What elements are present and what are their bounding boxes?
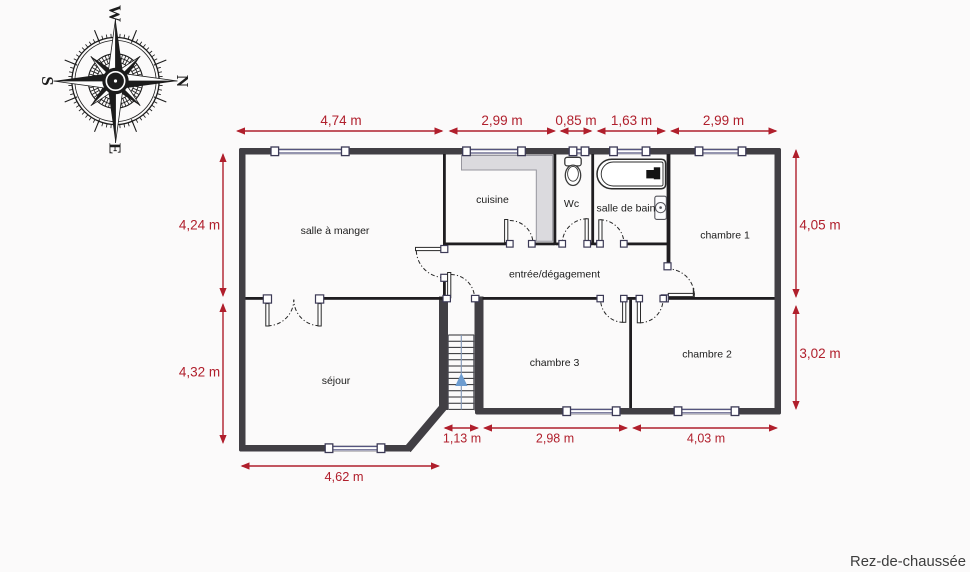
svg-text:salle de bain: salle de bain <box>597 203 656 215</box>
svg-text:S: S <box>38 76 57 85</box>
svg-text:2,99 m: 2,99 m <box>703 113 744 128</box>
svg-text:2,99 m: 2,99 m <box>481 113 522 128</box>
svg-text:0,85 m: 0,85 m <box>555 113 596 128</box>
svg-text:N: N <box>173 75 192 88</box>
svg-text:cuisine: cuisine <box>476 194 509 206</box>
svg-text:chambre 3: chambre 3 <box>530 357 580 369</box>
svg-text:2,98 m: 2,98 m <box>536 432 574 446</box>
svg-text:4,32 m: 4,32 m <box>179 365 220 380</box>
svg-text:entrée/dégagement: entrée/dégagement <box>509 269 600 281</box>
svg-text:3,02 m: 3,02 m <box>799 346 840 361</box>
svg-text:chambre 1: chambre 1 <box>700 230 750 242</box>
svg-text:4,62 m: 4,62 m <box>324 469 363 484</box>
svg-text:E: E <box>106 143 125 154</box>
svg-text:4,03 m: 4,03 m <box>687 432 725 446</box>
svg-text:1,63 m: 1,63 m <box>611 113 652 128</box>
svg-text:W: W <box>106 5 125 22</box>
svg-text:séjour: séjour <box>322 375 351 387</box>
svg-text:Rez-de-chaussée: Rez-de-chaussée <box>850 554 966 570</box>
svg-text:4,74 m: 4,74 m <box>320 113 361 128</box>
svg-text:4,24 m: 4,24 m <box>179 218 220 233</box>
svg-text:4,05 m: 4,05 m <box>799 218 840 233</box>
svg-text:salle à manger: salle à manger <box>301 225 370 237</box>
svg-text:Wc: Wc <box>564 198 579 210</box>
svg-text:chambre 2: chambre 2 <box>682 349 732 361</box>
svg-text:1,13 m: 1,13 m <box>443 432 481 446</box>
